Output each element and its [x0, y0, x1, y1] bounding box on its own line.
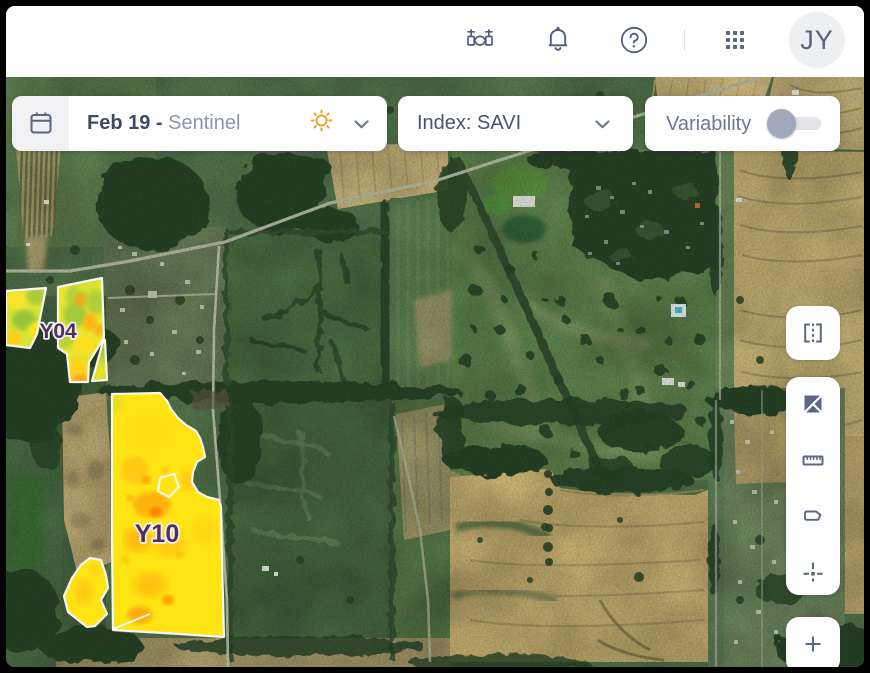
svg-text:Y04: Y04: [39, 320, 77, 343]
svg-text:Y10: Y10: [135, 520, 179, 548]
